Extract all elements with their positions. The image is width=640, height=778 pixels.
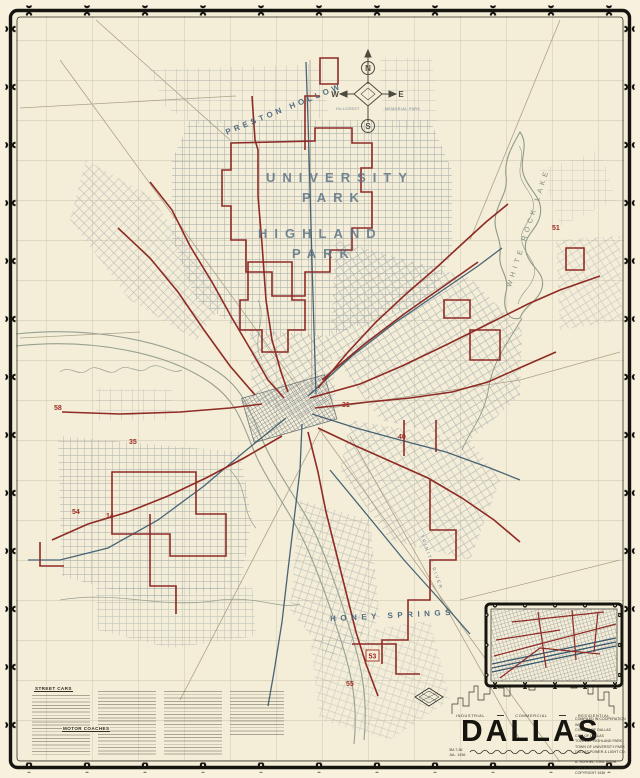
route-number-55: 55 xyxy=(346,681,354,688)
downtown-inset-map xyxy=(483,601,625,689)
legend-text-lines-col4 xyxy=(230,691,284,737)
credit-line: TOWN OF HIGHLAND PARK xyxy=(575,739,627,745)
credit-line: COMPILED IN COOPERATION WITH xyxy=(575,717,627,728)
legend-text-lines-col2 xyxy=(98,691,156,756)
label-university-park-line2: PARK xyxy=(302,190,366,205)
legend-text-lines-col1 xyxy=(32,695,90,755)
compass-n: N xyxy=(365,64,371,73)
compass-s: S xyxy=(365,122,371,131)
credit-line: DALLAS POWER & LIGHT CO. xyxy=(575,750,627,756)
credit-line: COPYRIGHT 1936 xyxy=(575,771,627,777)
label-hillcrest-line2: MEMORIAL PARK xyxy=(385,107,420,111)
label-university-park-line1: UNIVERSITY xyxy=(266,170,414,185)
compass-e: E xyxy=(398,90,404,99)
map-page: N S W E xyxy=(0,0,640,778)
label-highland-park-line2: PARK xyxy=(292,246,356,261)
label-highland-park-line1: HIGHLAND xyxy=(258,226,383,241)
route-number-40: 40 xyxy=(398,434,406,441)
route-number-35: 35 xyxy=(129,439,137,446)
route-number-51: 51 xyxy=(552,225,560,232)
route-number-14: 14 xyxy=(106,513,114,520)
legend-motor-coaches-title: MOTOR COACHES xyxy=(62,726,110,732)
label-hillcrest-line1: HILLCREST xyxy=(336,107,360,111)
route-number-31: 31 xyxy=(342,402,350,409)
date-note-line: JUL. 1936 xyxy=(449,753,465,758)
route-number-54: 54 xyxy=(72,509,80,516)
legend-street-cars-title: STREET CARS xyxy=(34,686,73,692)
route-number-53-box: 53 xyxy=(366,650,379,661)
map-art: N S W E xyxy=(16,16,625,762)
credits-block: COMPILED IN COOPERATION WITH COUNTY OF D… xyxy=(575,717,627,777)
dallas-map-canvas: N S W E xyxy=(0,0,640,778)
date-notes: 3M-7-36 JUL. 1936 xyxy=(449,748,465,759)
route-number-58: 58 xyxy=(54,405,62,412)
route-number-53: 53 xyxy=(369,654,377,661)
legend-text-lines-col3 xyxy=(164,691,222,756)
